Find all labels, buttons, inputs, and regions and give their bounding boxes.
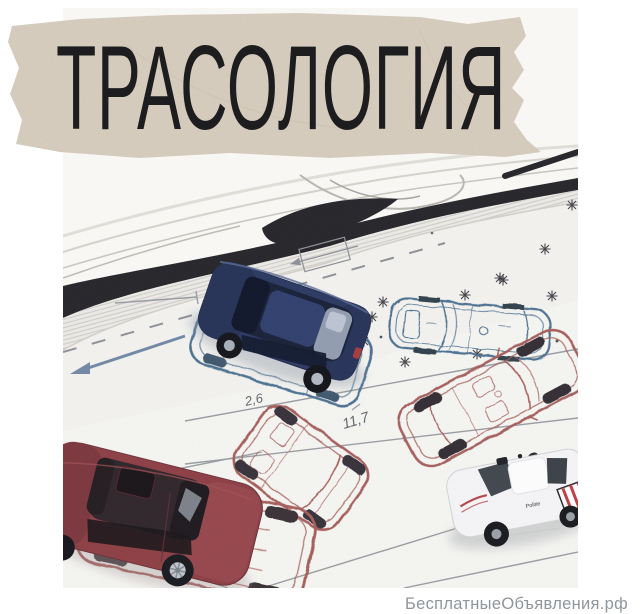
watermark: БесплатныеОбъявления.рф	[405, 595, 628, 613]
poster: 2,6 11,7 12	[0, 0, 640, 614]
tape-banner: ТРАСОЛОГИЯ	[0, 5, 560, 165]
banner-title: ТРАСОЛОГИЯ	[56, 21, 506, 155]
